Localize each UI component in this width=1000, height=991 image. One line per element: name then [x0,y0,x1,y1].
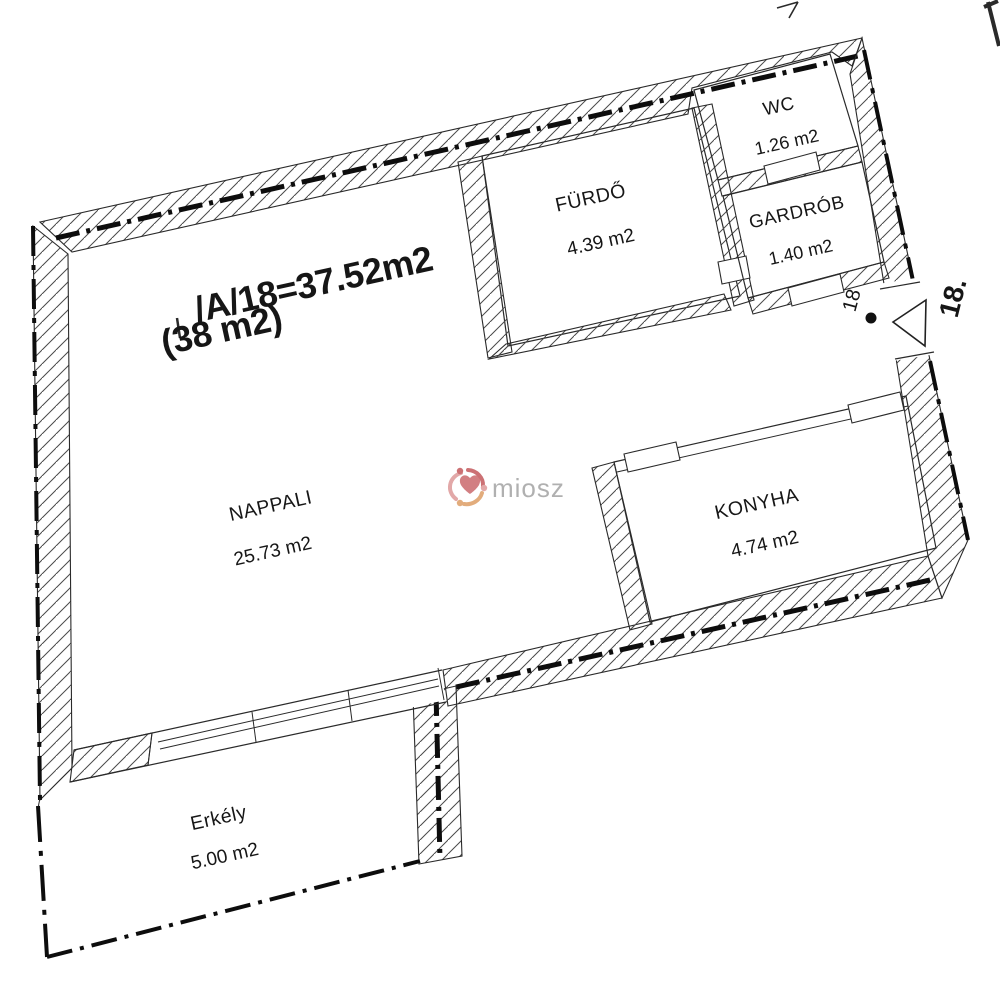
balcony-left-line [38,806,47,957]
label-furdo: FÜRDŐ [553,179,628,217]
balcony-bottom-line [47,861,420,957]
area-erkely: 5.00 m2 [189,839,261,874]
unit-number-dot [866,313,877,324]
area-nappali: 25.73 m2 [232,533,314,571]
furdo-wall-bottom [489,294,731,359]
floor-plan-svg: 18 18. /A/18=37.52m2 (38 m2) NAPPALI 25.… [0,0,1000,991]
furdo-wall-left [458,156,512,358]
area-gardrob: 1.40 m2 [767,235,835,269]
watermark-text: miosz [492,473,565,503]
label-gardrob: GARDRÓB [747,191,846,233]
label-erkely: Erkély [188,801,249,835]
label-nappali: NAPPALI [227,486,314,526]
unit-number-outside: 18. [933,275,972,320]
entrance: 18 18. [839,275,973,361]
unit-number-inside: 18 [839,287,866,314]
miosz-logo-icon [450,468,487,506]
unit-title: /A/18=37.52m2 (38 m2) [157,238,436,364]
area-furdo: 4.39 m2 [565,225,637,260]
konyha-opening-left [624,442,680,472]
wall-bottom-right [443,556,942,706]
label-wc: WC [761,92,797,119]
watermark: miosz [450,468,565,506]
top-tick-mark [777,2,798,18]
gardrob-door-threshold [788,274,844,306]
floor-plan-page: 18 18. /A/18=37.52m2 (38 m2) NAPPALI 25.… [0,0,1000,991]
konyha-opening-right [848,392,904,423]
konyha-wall-left [592,462,652,630]
wall-top [40,38,862,252]
label-konyha: KONYHA [713,484,801,524]
area-konyha: 4.74 m2 [729,527,801,562]
window-band [70,668,446,782]
corner-fragment [984,1,999,46]
window-band-pier [70,733,152,782]
